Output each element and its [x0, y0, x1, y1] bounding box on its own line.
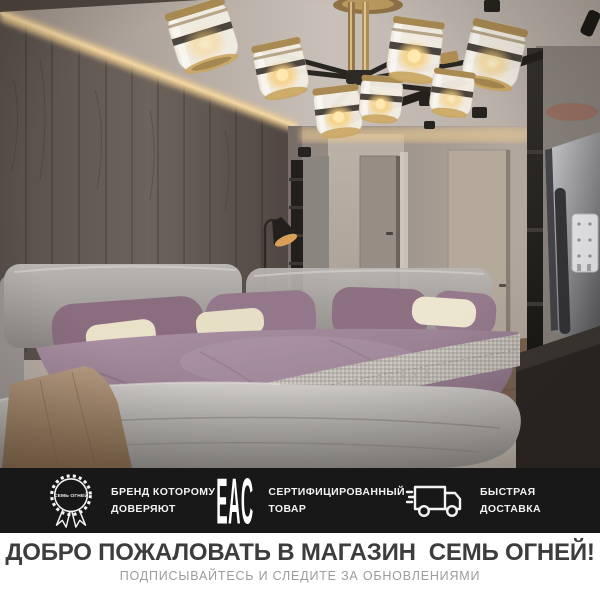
- eac-certification-icon: EAC: [215, 474, 255, 528]
- badges-bar: СЕМЬ ОГНЕЙ БРЕНД КОТОРОМУ ДОВЕРЯЮТ EAC С…: [0, 468, 600, 533]
- bedroom-scene: [0, 0, 600, 468]
- badge-label-line2: ТОВАР: [268, 501, 405, 517]
- badge-label-line1: СЕРТИФИЦИРОВАННЫЙ: [268, 484, 405, 500]
- brand-seal-icon: СЕМЬ ОГНЕЙ: [44, 472, 98, 530]
- badge-certification: EAC СЕРТИФИЦИРОВАННЫЙ ТОВАР: [215, 474, 405, 528]
- welcome-title: ДОБРО ПОЖАЛОВАТЬ В МАГАЗИН СЕМЬ ОГНЕЙ!: [5, 540, 594, 566]
- footer: ДОБРО ПОЖАЛОВАТЬ В МАГАЗИН СЕМЬ ОГНЕЙ! П…: [0, 533, 600, 600]
- badge-brand-trust: СЕМЬ ОГНЕЙ БРЕНД КОТОРОМУ ДОВЕРЯЮТ: [44, 472, 215, 530]
- badge-label-line1: БРЕНД КОТОРОМУ: [111, 484, 215, 500]
- badge-label-line2: ДОСТАВКА: [480, 501, 541, 517]
- delivery-truck-icon: [405, 479, 467, 523]
- badge-label-line1: БЫСТРАЯ: [480, 484, 541, 500]
- badge-delivery: БЫСТРАЯ ДОСТАВКА: [405, 479, 541, 523]
- badge-label-line2: ДОВЕРЯЮТ: [111, 501, 215, 517]
- hero-photo: [0, 0, 600, 468]
- product-card: СЕМЬ ОГНЕЙ БРЕНД КОТОРОМУ ДОВЕРЯЮТ EAC С…: [0, 0, 600, 600]
- eac-text: EAC: [217, 474, 254, 528]
- vignette: [0, 0, 600, 468]
- subscribe-subtitle: ПОДПИСЫВАЙТЕСЬ И СЛЕДИТЕ ЗА ОБНОВЛЕНИЯМИ: [120, 569, 481, 583]
